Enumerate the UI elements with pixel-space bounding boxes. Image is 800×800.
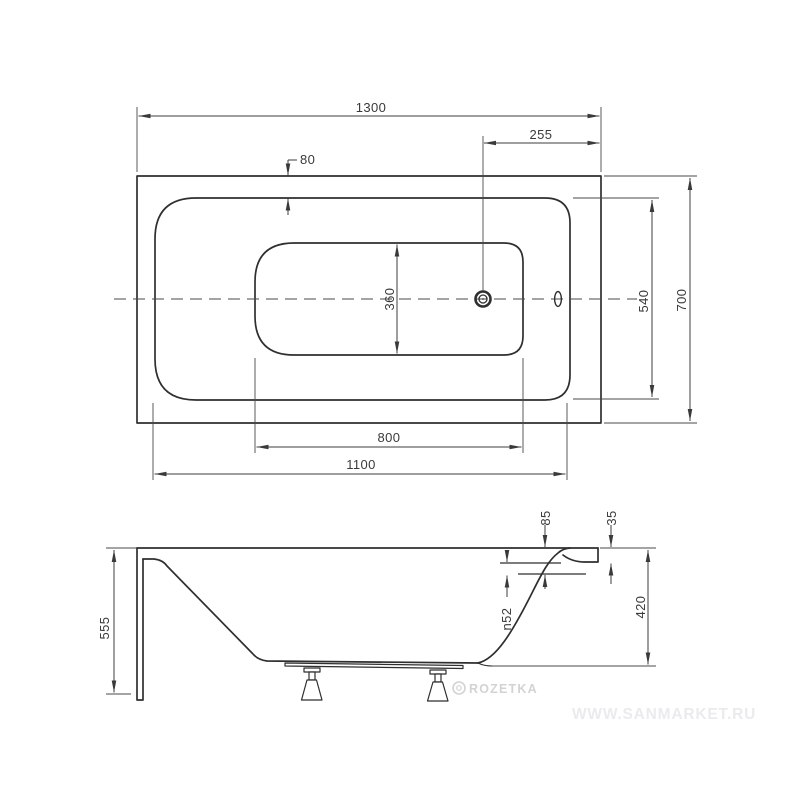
dim-label-360: 360 <box>382 288 397 311</box>
rozetka-watermark-text: ROZETKA <box>469 682 538 696</box>
tub-profile-right-wall <box>478 548 570 663</box>
bathtub-technical-drawing: 1300 255 80 360 540 <box>0 0 800 800</box>
dim-label-555: 555 <box>97 617 112 640</box>
dim-label-80: 80 <box>300 152 315 167</box>
dim-rim-margin: 80 <box>288 152 315 215</box>
apron-panel <box>137 548 143 700</box>
dim-label-800: 800 <box>378 430 401 445</box>
wall-base <box>478 663 492 666</box>
rim-end-cap <box>563 548 598 562</box>
dim-total-height: 555 <box>97 550 131 694</box>
foot-left <box>302 668 323 700</box>
dim-label-420: 420 <box>633 596 648 619</box>
dim-rim-thickness: 35 <box>604 510 619 584</box>
foot-right <box>428 670 449 701</box>
dim-basin-top-length: 1100 <box>153 403 567 480</box>
dim-label-540: 540 <box>636 290 651 313</box>
dim-drain-to-edge: 255 <box>483 127 600 291</box>
drawing-svg: 1300 255 80 360 540 <box>0 0 800 800</box>
side-view: 555 85 35 n52 420 <box>97 510 656 701</box>
dim-basin-width: 360 <box>382 245 397 354</box>
rozetka-watermark: ROZETKA <box>453 682 538 696</box>
dim-basin-bottom-length: 800 <box>255 358 523 453</box>
dim-label-85: 85 <box>538 510 553 525</box>
dim-label-1100: 1100 <box>346 457 376 472</box>
dim-label-n52: n52 <box>499 608 514 631</box>
dim-label-35: 35 <box>604 510 619 525</box>
rozetka-logo-inner <box>457 686 462 691</box>
dim-shell-depth: 420 <box>490 548 656 666</box>
dim-label-1300: 1300 <box>356 100 387 115</box>
tub-profile-slope <box>143 559 478 663</box>
sanmarket-watermark-text: WWW.SANMARKET.RU <box>572 706 756 723</box>
dim-label-255: 255 <box>530 127 553 142</box>
rozetka-logo-icon <box>453 682 465 694</box>
top-view: 1300 255 80 360 540 <box>114 100 697 480</box>
dim-label-700: 700 <box>674 289 689 312</box>
